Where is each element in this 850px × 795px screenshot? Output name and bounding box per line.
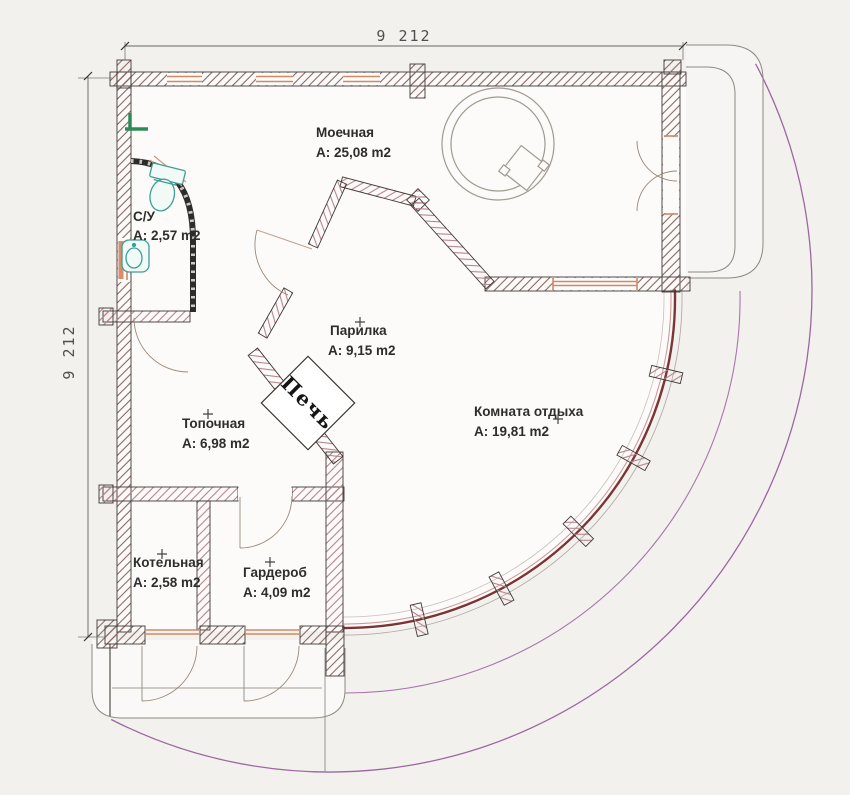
room-label-kotelnaya-area: A: 2,58 m2 xyxy=(133,575,201,590)
dimension-left: 9 212 xyxy=(60,72,112,641)
floor-plan-svg: Печь Моечная A: 25,08 m2 С/У A: 2,57 m2 … xyxy=(0,0,850,795)
sink-icon xyxy=(122,240,149,272)
room-label-garderob-name: Гардероб xyxy=(243,565,307,580)
dimension-left-label: 9 212 xyxy=(60,324,78,379)
room-label-parilka-name: Парилка xyxy=(330,323,387,338)
room-label-topochnaya-area: A: 6,98 m2 xyxy=(182,436,250,451)
opening-wardrobe xyxy=(238,488,292,500)
floor-plan-canvas: Печь Моечная A: 25,08 m2 С/У A: 2,57 m2 … xyxy=(0,0,850,795)
room-label-komnata-name: Комната отдыха xyxy=(474,404,584,419)
dimension-top-label: 9 212 xyxy=(376,27,431,45)
opening-restroom xyxy=(553,278,637,290)
window-top-1 xyxy=(167,73,202,85)
window-top-2 xyxy=(256,73,293,85)
room-label-topochnaya-name: Топочная xyxy=(182,416,245,431)
room-label-komnata-area: A: 19,81 m2 xyxy=(474,424,549,439)
room-label-garderob-area: A: 4,09 m2 xyxy=(243,585,311,600)
room-label-parilka-area: A: 9,15 m2 xyxy=(328,343,396,358)
window-top-3 xyxy=(343,73,380,85)
room-label-su-name: С/У xyxy=(133,209,156,224)
room-label-moechnaya-name: Моечная xyxy=(316,125,374,140)
room-label-su-area: A: 2,57 m2 xyxy=(133,228,201,243)
opening-french-doors xyxy=(663,136,679,214)
room-label-moechnaya-area: A: 25,08 m2 xyxy=(316,145,391,160)
dimension-top: 9 212 xyxy=(121,27,687,60)
room-label-kotelnaya-name: Котельная xyxy=(133,555,204,570)
